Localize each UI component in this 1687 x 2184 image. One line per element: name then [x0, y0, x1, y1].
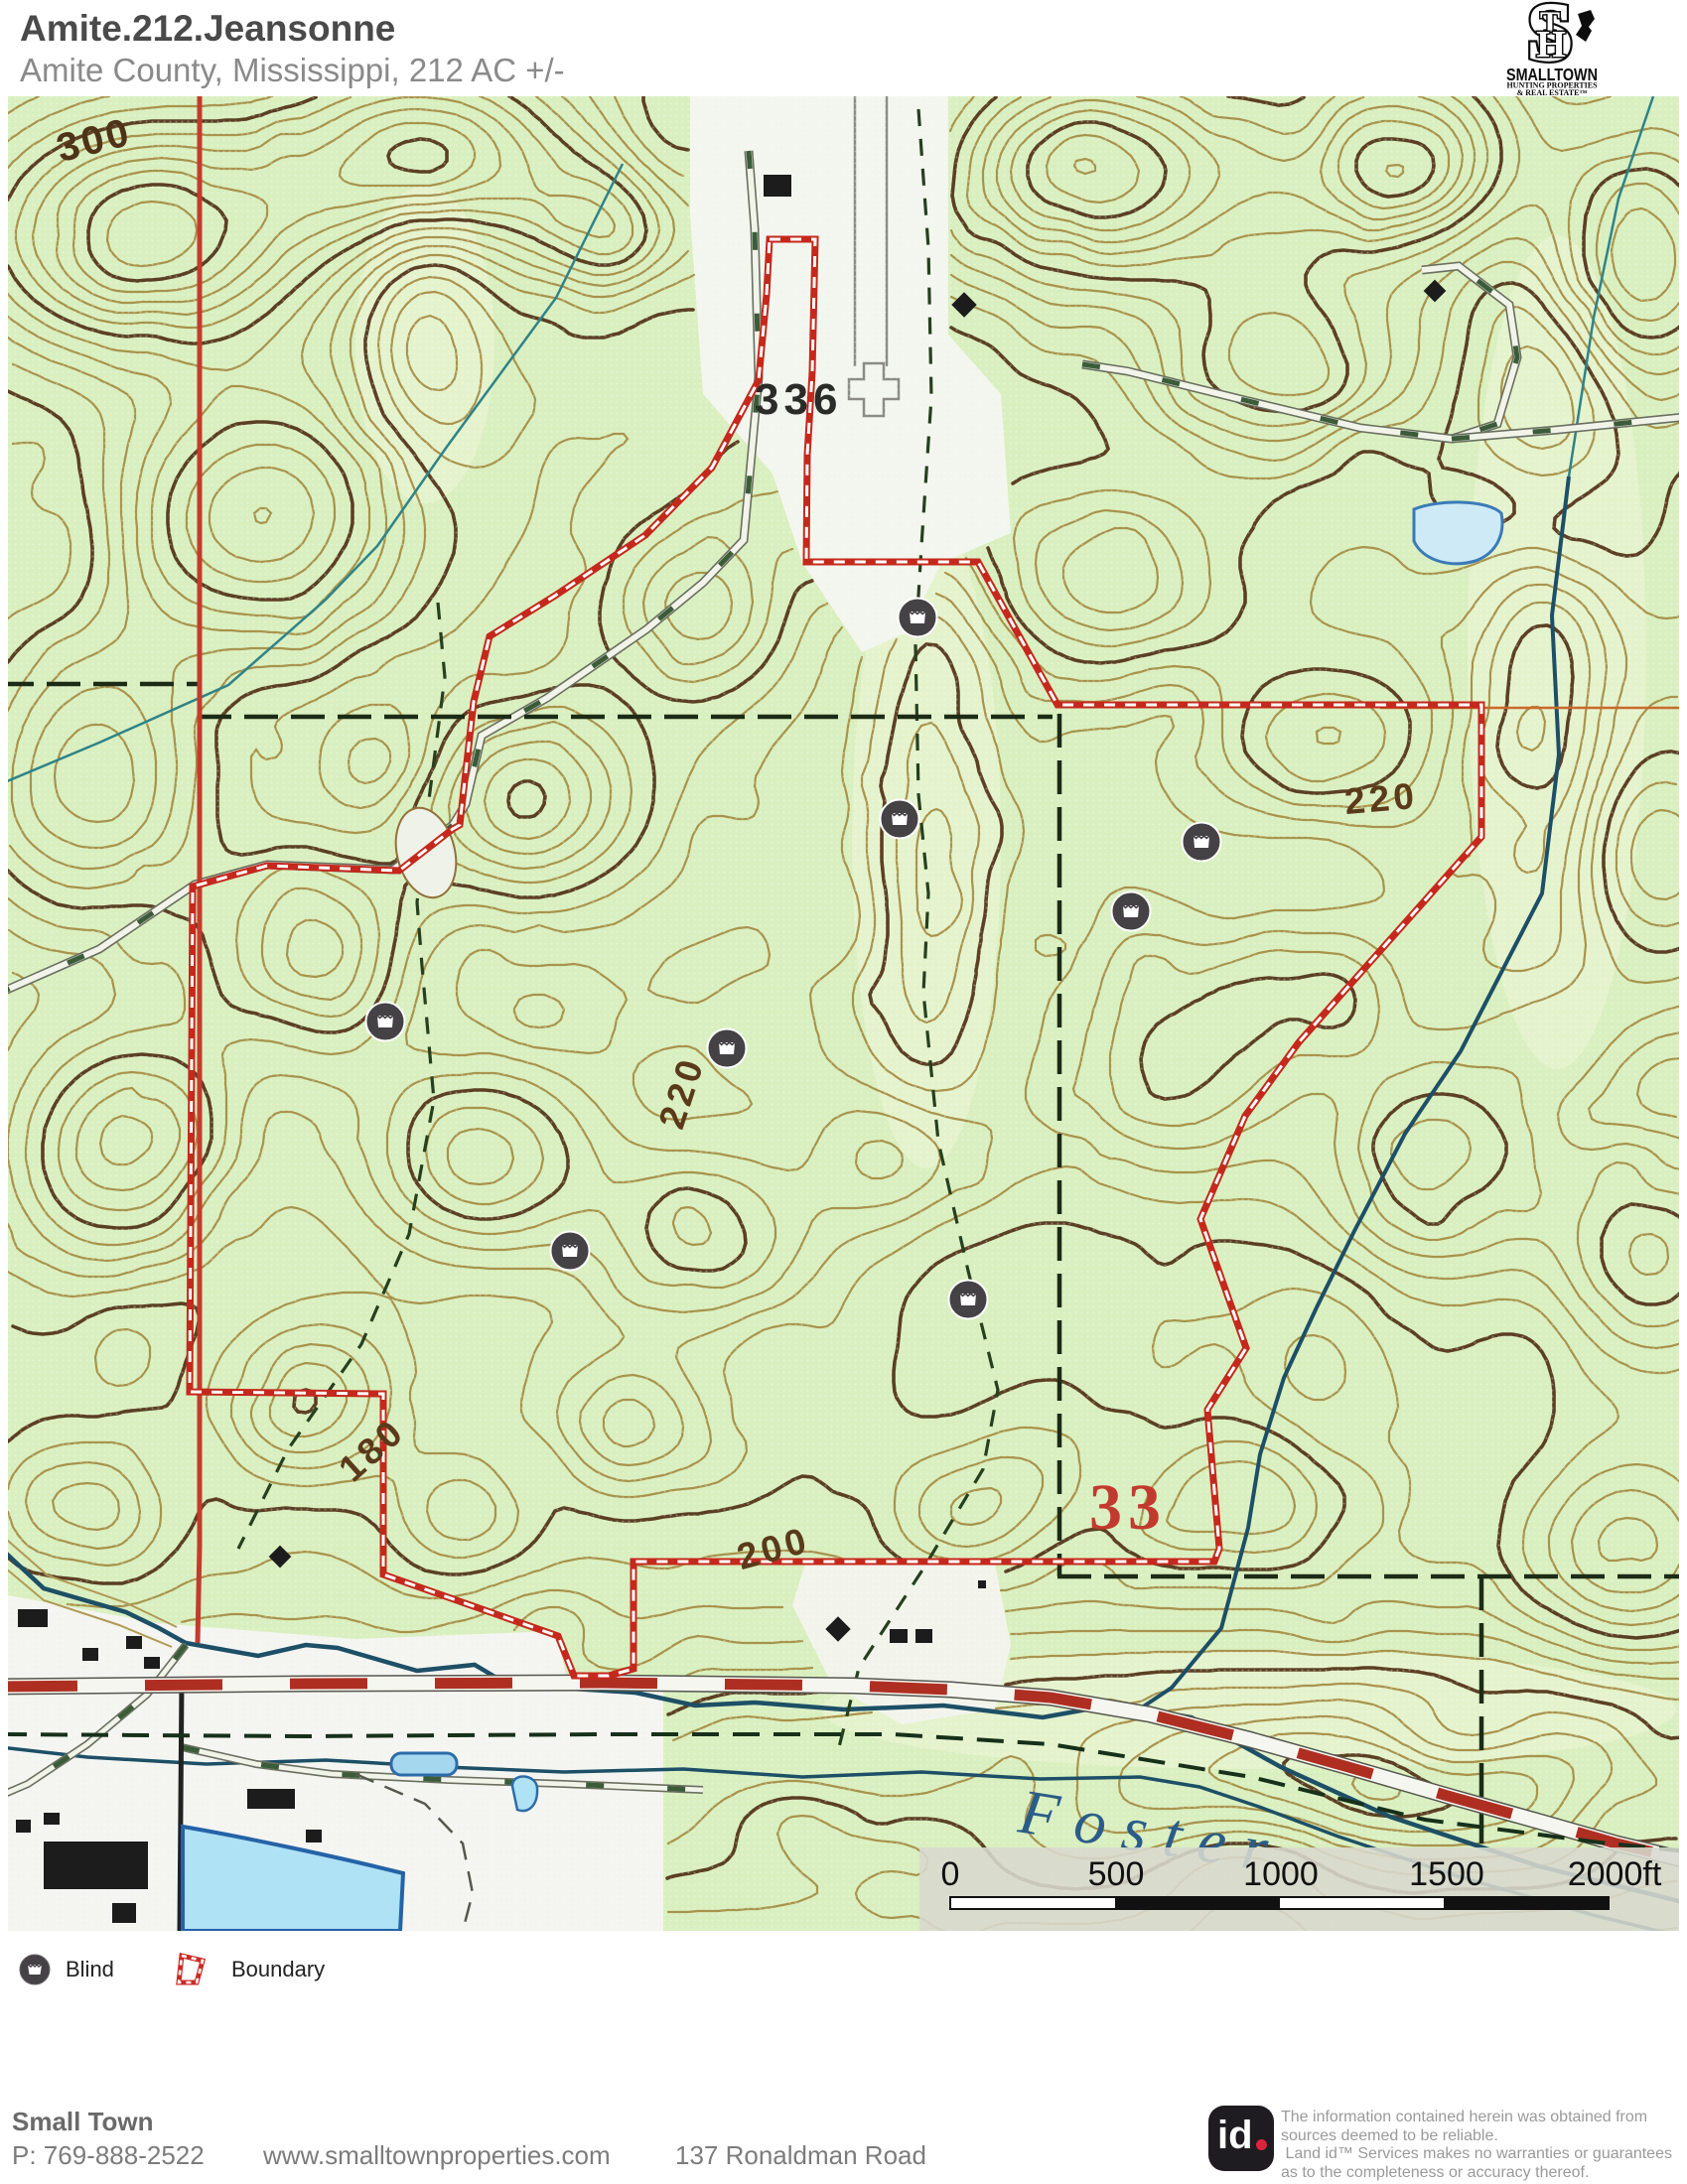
svg-text:336: 336 [755, 375, 842, 424]
svg-text:220: 220 [1342, 775, 1419, 822]
svg-text:500: 500 [1088, 1855, 1145, 1893]
svg-text:Boundary: Boundary [231, 1957, 325, 1981]
svg-text:2000ft: 2000ft [1568, 1855, 1662, 1893]
svg-text:& REAL ESTATE™: & REAL ESTATE™ [1517, 88, 1588, 96]
svg-text:H: H [1536, 24, 1566, 66]
svg-text:1000: 1000 [1243, 1855, 1319, 1893]
svg-text:1500: 1500 [1409, 1855, 1484, 1893]
svg-text:Blind: Blind [66, 1957, 114, 1981]
svg-text:0: 0 [941, 1855, 960, 1893]
svg-text:33: 33 [1089, 1471, 1167, 1544]
